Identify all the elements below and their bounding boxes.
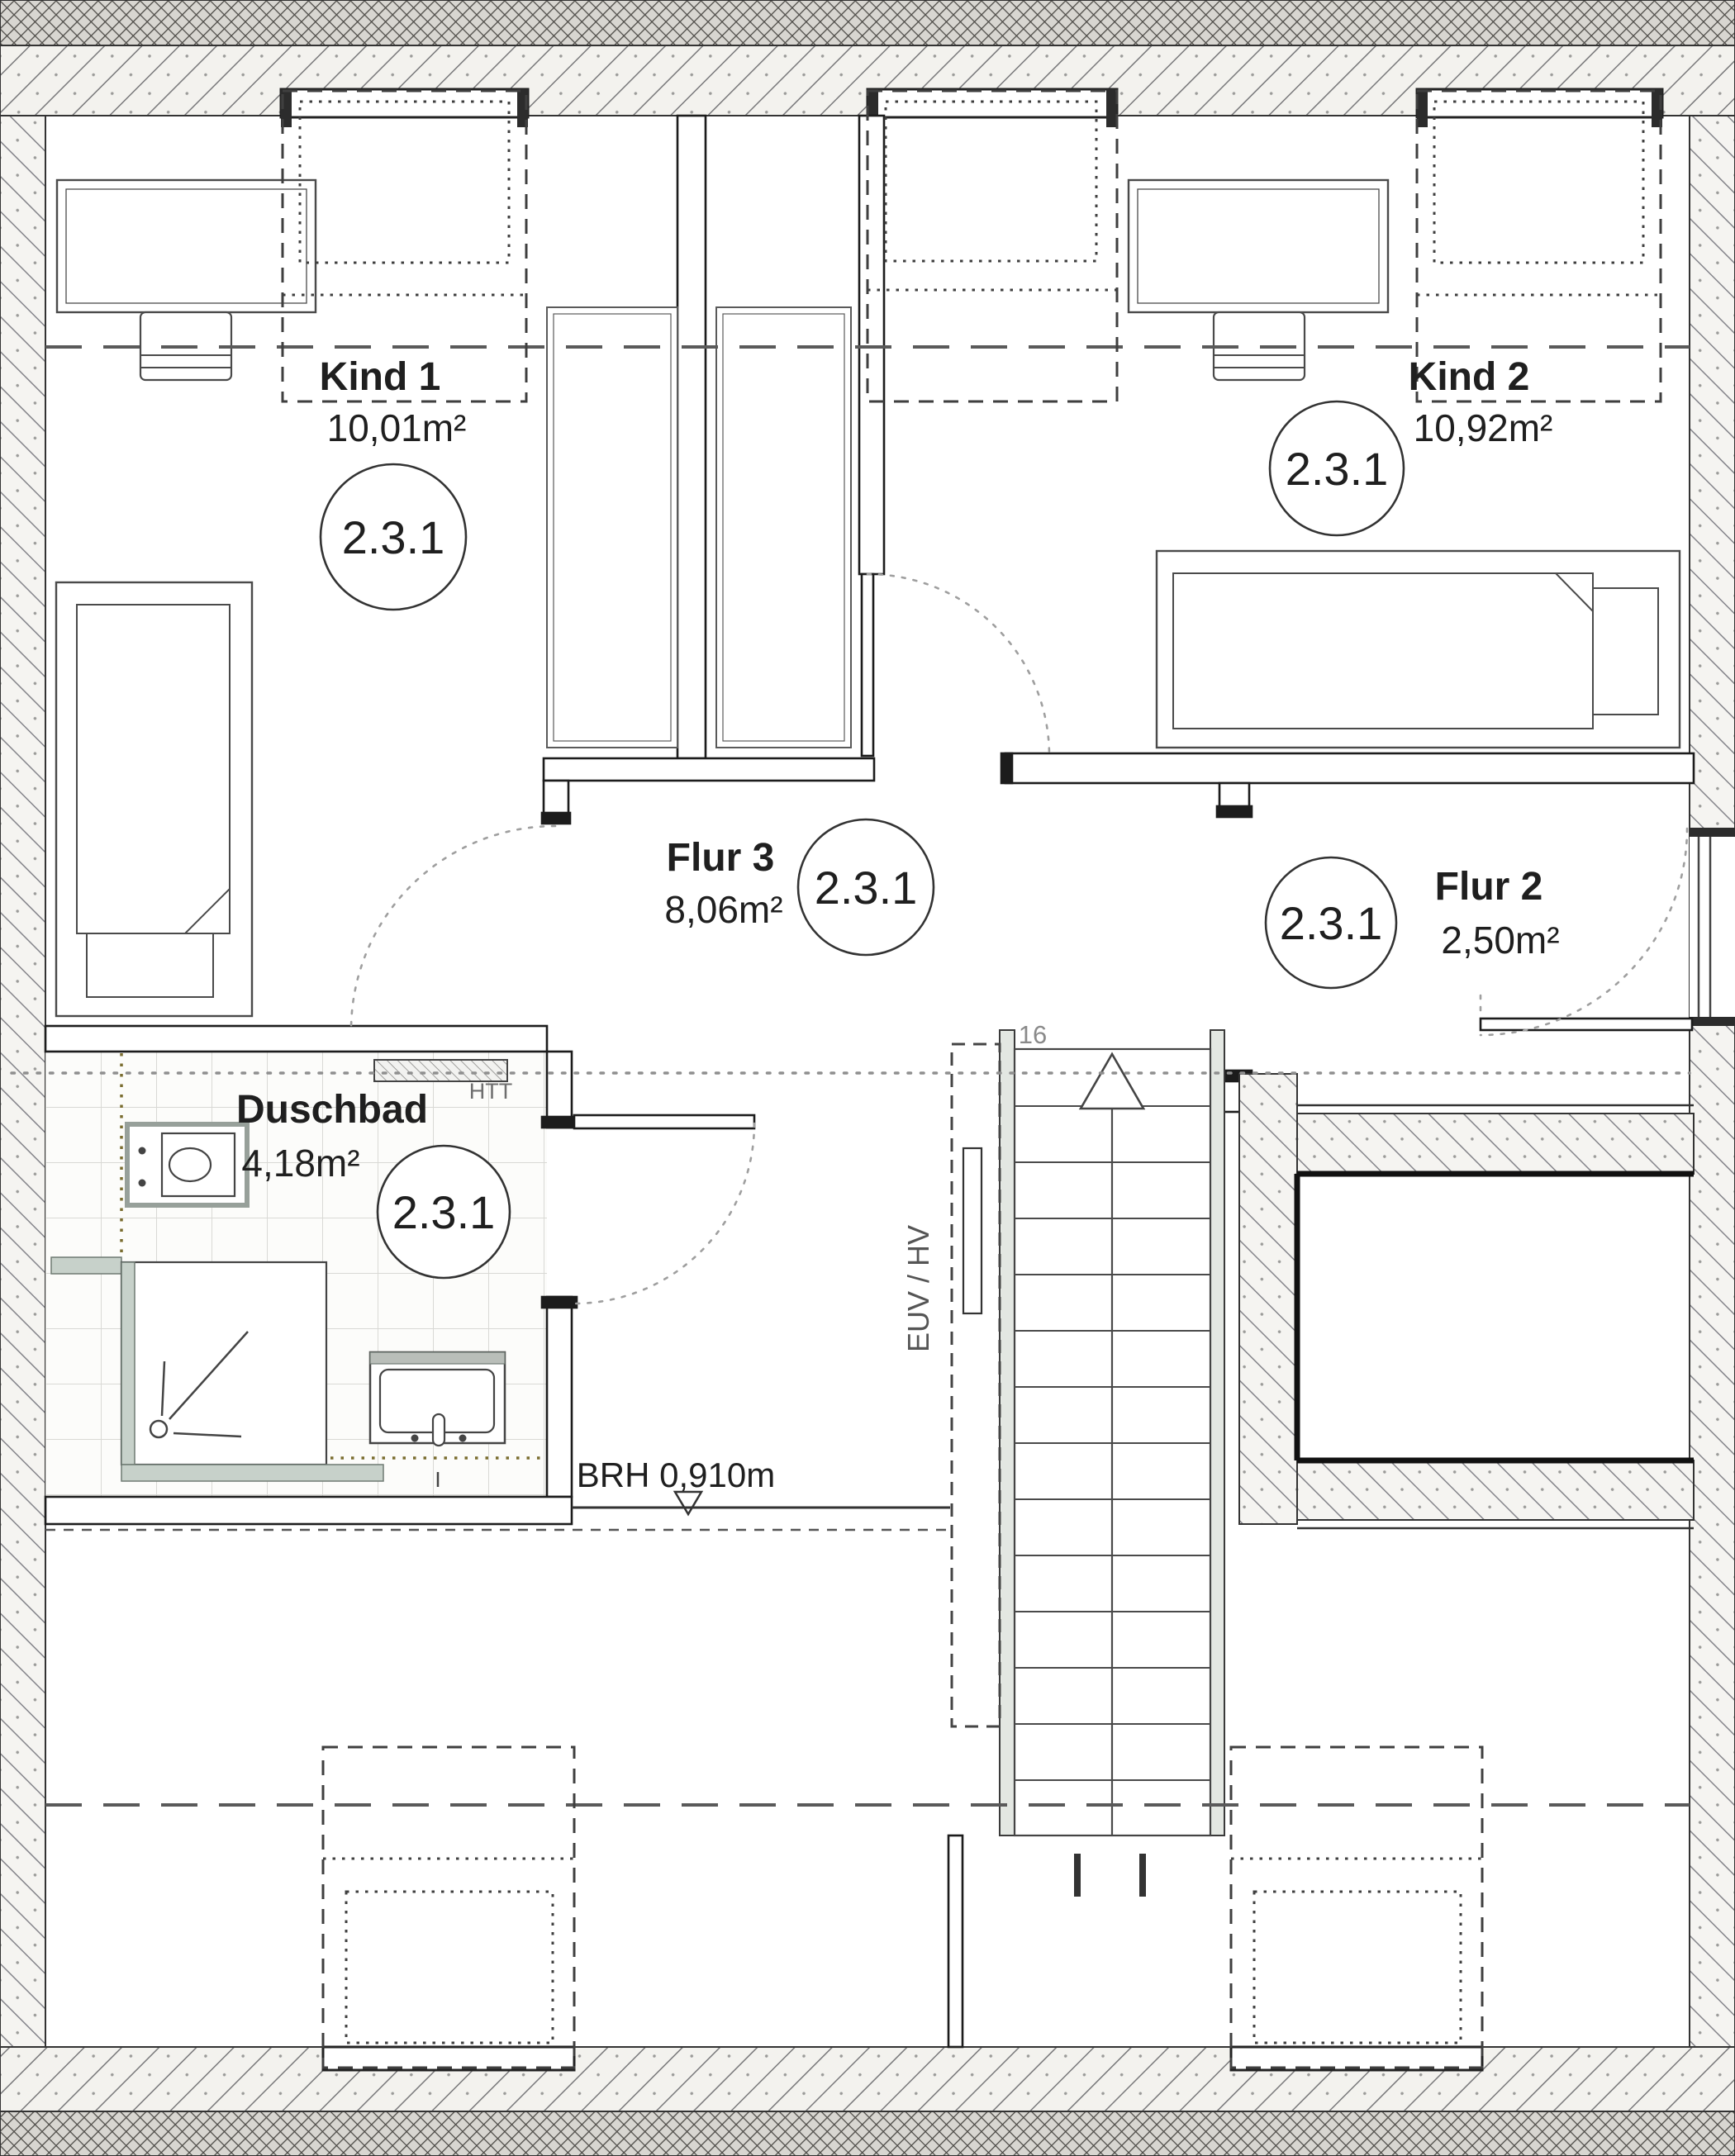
room-name: Flur 3 (667, 836, 775, 880)
dormer-recess-middle (867, 89, 1117, 127)
wall-kind1-bottom (544, 758, 874, 781)
wall-flur3-kind2 (859, 116, 884, 574)
stair-right-wall (1210, 1030, 1224, 1835)
floor-plan-drawing: Kind 1 10,01m² 2.3.1 Kind 2 10,92m² 2.3.… (0, 0, 1735, 2156)
stair-start-tick (1139, 1854, 1146, 1897)
room-name: Duschbad (236, 1088, 428, 1132)
bed-mattress (77, 605, 230, 933)
stair-start-tick (1074, 1854, 1081, 1897)
dormer-recess-left (281, 89, 528, 127)
room-area: 10,92m² (1414, 406, 1553, 449)
kind1-furniture (56, 180, 316, 1016)
room-label-flur3: Flur 3 8,06m² 2.3.1 (664, 819, 934, 955)
bottom-ring-beam-band (0, 2111, 1735, 2156)
wall-bath-bottom (45, 1497, 572, 1524)
utility-shaft-label: EUV / HV (901, 1225, 935, 1352)
shower-drain (150, 1421, 167, 1437)
room-tag: 2.3.1 (1280, 897, 1383, 949)
room-area: 4,18m² (241, 1142, 359, 1185)
dormer-recess-right (1417, 89, 1662, 127)
kind1-door-arc (351, 826, 555, 1030)
room-label-kind2: Kind 2 10,92m² 2.3.1 (1270, 355, 1552, 535)
flur2-window (1690, 828, 1735, 1026)
wall-cap (1001, 753, 1012, 783)
floor-plan-page: Kind 1 10,01m² 2.3.1 Kind 2 10,92m² 2.3.… (0, 0, 1735, 2156)
bed-mattress (1173, 573, 1593, 729)
wall-flur2-bottom (1481, 1019, 1692, 1030)
staircase (1000, 1030, 1224, 1897)
sill-height-marker-icon (675, 1492, 701, 1514)
kind2-door-arc (867, 574, 1049, 756)
bath-door-arc (574, 1123, 754, 1304)
room-label-kind1: Kind 1 10,01m² 2.3.1 (320, 355, 467, 610)
kind2-door-leaf (862, 574, 873, 756)
wall-cap (1217, 806, 1252, 817)
desk-inner (1138, 189, 1379, 303)
room-name: Kind 2 (1409, 355, 1530, 399)
void-room-border (1297, 1174, 1694, 1460)
stair-left-wall (1000, 1030, 1015, 1835)
bath-door-leaf (574, 1115, 754, 1128)
wall-kind2-bottom (1005, 753, 1694, 783)
wall-bath-top (45, 1026, 547, 1052)
towel-radiator-label: HTT (469, 1079, 512, 1104)
room-tag: 2.3.1 (1286, 443, 1389, 495)
room-name: Kind 1 (320, 355, 441, 399)
stair-step-count: 16 (1019, 1020, 1047, 1049)
room-area: 8,06m² (664, 888, 782, 931)
toilet (127, 1124, 247, 1205)
right-exterior-wall (1690, 116, 1735, 2047)
desk-inner (66, 189, 307, 303)
wall-bath-right-lower (547, 1297, 572, 1497)
wall-cap (542, 1297, 577, 1308)
room-label-flur2: Flur 2 2,50m² 2.3.1 (1266, 857, 1560, 988)
sill-height-note: BRH 0,910m (577, 1456, 775, 1494)
room-tag: 2.3.1 (342, 511, 445, 563)
room-name: Flur 2 (1435, 865, 1543, 909)
wall-kind1-door-stub (544, 781, 568, 817)
bed-foot (87, 933, 213, 997)
wall-cap (542, 813, 570, 824)
void-room (1239, 1074, 1694, 1528)
room-area: 2,50m² (1441, 919, 1559, 962)
top-ring-beam-band (0, 0, 1735, 45)
bed-pillow (1593, 588, 1658, 715)
wall-cap (542, 1117, 577, 1128)
faucet (433, 1414, 444, 1446)
room-tag: 2.3.1 (392, 1186, 496, 1238)
wall-kind1-flur3 (677, 116, 706, 758)
shaft-cabinet (963, 1148, 982, 1313)
room-tag: 2.3.1 (815, 862, 918, 914)
utility-shaft (952, 1044, 1000, 1726)
left-exterior-wall (0, 116, 45, 2047)
room-area: 10,01m² (327, 406, 467, 449)
wall-below-stair (948, 1835, 963, 2047)
